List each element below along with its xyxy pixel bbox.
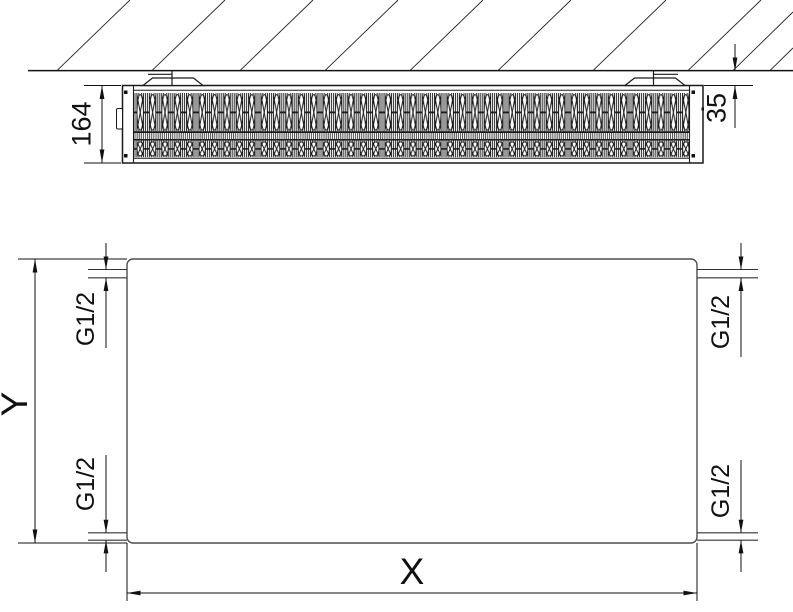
arrowhead-up xyxy=(33,259,38,273)
top-section-view: 164 35 xyxy=(28,0,793,163)
arrowhead-down xyxy=(100,150,105,164)
arrowhead-down xyxy=(733,58,738,72)
convector-fins-top-row xyxy=(134,93,690,132)
arrowhead-down xyxy=(739,520,744,533)
height-dimension-label: Y xyxy=(0,392,35,417)
wall-gap-dimension-label: 35 xyxy=(701,93,731,123)
arrowhead-up xyxy=(733,86,738,100)
radiator-cross-section xyxy=(117,86,705,164)
wall-hatch xyxy=(57,0,793,71)
end-plate-tab xyxy=(692,91,696,95)
arrowhead-up xyxy=(104,540,109,553)
thread-label-top-right: G1/2 xyxy=(707,295,735,349)
left-side-plug xyxy=(117,109,123,130)
connection-stub-bottom-left xyxy=(88,533,127,540)
connection-stub-bottom-right xyxy=(697,533,758,540)
arrowhead-left xyxy=(127,591,141,596)
arrowhead-up xyxy=(104,278,109,291)
dimension-thread-bottom-left xyxy=(104,455,109,572)
connection-stub-top-right xyxy=(697,270,758,278)
convector-fins-bottom-row xyxy=(134,141,690,158)
connection-stub-top-left xyxy=(88,270,127,278)
depth-dimension-label: 164 xyxy=(66,101,96,146)
arrowhead-down xyxy=(33,530,38,544)
arrowhead-down xyxy=(104,520,109,533)
arrowhead-right xyxy=(684,591,698,596)
arrowhead-up xyxy=(739,278,744,291)
thread-label-bottom-right: G1/2 xyxy=(707,464,735,518)
end-plate-tab xyxy=(692,154,696,158)
mounting-bracket-right xyxy=(625,71,685,86)
arrowhead-up xyxy=(739,540,744,553)
arrowhead-down xyxy=(739,257,744,270)
end-plate-tab xyxy=(124,154,128,158)
dimension-thread-top-left xyxy=(104,243,109,348)
thread-label-top-left: G1/2 xyxy=(72,292,100,346)
radiator-technical-drawing: 164 35 xyxy=(0,0,793,612)
arrowhead-up xyxy=(100,86,105,100)
convector-fins-middle-band xyxy=(134,132,690,140)
front-view: Y X G1/2 G1/2 xyxy=(0,243,758,601)
dimension-thread-bottom-right xyxy=(739,460,744,572)
radiator-front-panel xyxy=(127,259,697,543)
mounting-bracket-left xyxy=(143,71,203,86)
thread-label-bottom-left: G1/2 xyxy=(72,457,100,511)
width-dimension-label: X xyxy=(400,551,425,592)
arrowhead-down xyxy=(104,257,109,270)
end-plate-tab xyxy=(124,91,128,95)
drawing-svg: 164 35 xyxy=(0,0,793,612)
dimension-thread-top-right xyxy=(739,243,744,357)
